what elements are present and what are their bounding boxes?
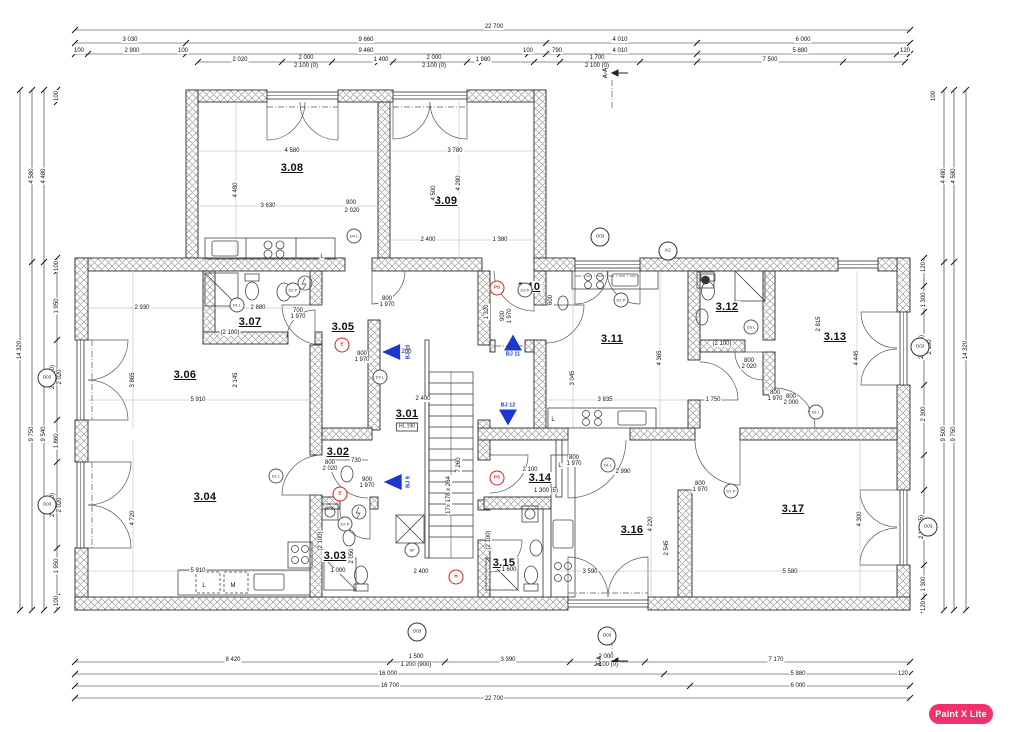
dimension-text: 1 970: [766, 396, 783, 402]
dimension-text: 2 930: [133, 305, 150, 311]
watermark-badge: Paint X Lite: [929, 704, 993, 724]
door-tag: D1 L: [230, 298, 245, 313]
dimension-text: 3 045: [570, 369, 576, 386]
dimension-text: 4 300: [857, 510, 863, 527]
window-tag: O03: [919, 518, 938, 537]
dimension-text: 22 700: [484, 24, 504, 30]
window-tag: O03: [591, 228, 610, 247]
dimension-text: 100: [177, 48, 189, 54]
dimension-text: 5 880: [789, 671, 806, 677]
dimension-text: 1 950: [54, 297, 60, 314]
room-label-3.06: 3.06: [172, 369, 199, 381]
dimension-text: 3 780: [446, 148, 463, 154]
dimension-text: (2 100): [318, 530, 324, 551]
door-tag: D1 P: [724, 484, 739, 499]
dimension-text: 4 480: [941, 167, 947, 184]
window-tag: O03: [38, 496, 57, 515]
room-label-3.17: 3.17: [780, 503, 807, 515]
room-label-3.13: 3.13: [822, 331, 849, 343]
dimension-text: 5 880: [791, 48, 808, 54]
door-tag: D2 P: [286, 283, 301, 298]
dimension-text: 3 835: [596, 397, 613, 403]
room-label-3.03: 3.03: [322, 550, 349, 562]
dimension-text: 2 545: [664, 539, 670, 556]
dimension-text: L: [557, 463, 562, 469]
dimension-text: 1 950: [54, 557, 60, 574]
direction-arrow-bj-10: BJ 10: [382, 344, 416, 360]
dimension-text: 4 445: [854, 349, 860, 366]
dimension-text: 900: [500, 310, 506, 322]
dimension-text: 3 630: [259, 203, 276, 209]
room-label-3.04: 3.04: [192, 491, 219, 503]
dimension-text: 2 020: [343, 208, 360, 214]
dimension-text: 1 970: [358, 483, 375, 489]
red-marker: H: [449, 570, 464, 585]
dimension-text: L: [201, 583, 206, 589]
dimension-text: 100: [522, 48, 534, 54]
dimension-text: 900: [345, 200, 357, 206]
direction-arrow-bj-12: BJ 12: [499, 403, 517, 426]
arrow-label: BJ 11: [506, 352, 520, 358]
dimension-text: 1 320: [484, 303, 490, 320]
dimension-text: 1 500: [407, 654, 424, 660]
arrow-label: BJ 12: [501, 403, 516, 409]
door-tag: D2 P: [338, 517, 353, 532]
room-label-3.07: 3.07: [237, 316, 264, 328]
room-label-3.11: 3.11: [599, 333, 625, 345]
dimension-text: 1 970: [565, 461, 582, 467]
door-tag: D1 L: [269, 469, 284, 484]
dimension-text: 2 145: [233, 371, 239, 388]
dimension-text: 2 000: [425, 55, 442, 61]
dimension-text: 1 750: [704, 397, 721, 403]
arrow-up-icon: [504, 335, 522, 351]
dimension-text: 1 700: [588, 55, 605, 61]
dimension-text: 7 260: [456, 456, 462, 473]
window-tag: O03: [911, 338, 930, 357]
dimension-text: 1 300: [921, 575, 927, 592]
dimension-text: 2 900: [123, 48, 140, 54]
room-label-3.16: 3.16: [619, 524, 646, 536]
door-tag: D2 L: [373, 370, 388, 385]
dimension-text: 2 020: [740, 364, 757, 370]
dimension-text: L: [319, 254, 324, 260]
room-label-3.05: 3.05: [330, 321, 357, 333]
dimension-text: 1 200 (900): [400, 662, 433, 668]
dimension-text: 100: [54, 260, 60, 272]
dimension-text: 9 750: [29, 425, 35, 442]
window-tag: O03: [38, 369, 57, 388]
dimension-text: 2 050: [349, 547, 355, 564]
dimension-text: 4 480: [41, 167, 47, 184]
dimension-text: 4 500: [431, 184, 437, 201]
dimension-text: 4 580: [29, 167, 35, 184]
dimension-text: 1 980: [474, 57, 491, 63]
dimension-text: 2 020: [231, 57, 248, 63]
door-tag: D3 L: [744, 320, 759, 335]
dimension-text: 600: [548, 294, 554, 306]
room-label-3.14: 3.14: [527, 472, 554, 484]
door-tag: D1 L: [601, 458, 616, 473]
dimension-text: 2 400: [414, 396, 431, 402]
door-tag: SP: [405, 543, 420, 558]
dimension-text: 4 365: [657, 349, 663, 366]
red-marker: PS: [490, 281, 505, 296]
section-label: A-A: [597, 656, 603, 667]
dimension-text: 2 000: [782, 400, 799, 406]
dimension-text: 7 170: [767, 657, 784, 663]
dimension-text: 14 320: [963, 340, 969, 360]
dimension-text: 1 380: [491, 237, 508, 243]
dimension-text: 4 720: [130, 509, 136, 526]
dimension-text: (2 100): [486, 529, 492, 550]
dimension-text: 1 000: [329, 568, 346, 574]
dimension-text: 1 400: [372, 57, 389, 63]
room-label-3.08: 3.08: [279, 162, 306, 174]
dimension-text: M: [230, 583, 237, 589]
dimension-text: 4 580: [951, 167, 957, 184]
dimension-text: 4 280: [456, 174, 462, 191]
dimension-text: 16 700: [380, 683, 400, 689]
dimension-text: 1 970: [378, 302, 395, 308]
dimension-text: 1 300: [921, 291, 927, 308]
door-tag: D1 P: [614, 293, 629, 308]
arrow-left-icon: [384, 474, 402, 490]
dimension-text: 8 420: [224, 657, 241, 663]
dimension-text: 2 815: [816, 315, 822, 332]
dimension-text: 9 660: [357, 37, 374, 43]
dimension-text: 790: [551, 48, 563, 54]
arrow-label: BJ 10: [406, 345, 412, 360]
dimension-text: 22 700: [484, 696, 504, 702]
dimension-text: 120: [921, 261, 927, 273]
dimension-text: 16 000: [378, 671, 398, 677]
dimension-text: 730: [350, 458, 362, 464]
dimension-text: 1 970: [507, 307, 513, 324]
dimension-text: 2 400: [412, 569, 429, 575]
dimension-text: 3 865: [130, 371, 136, 388]
dimension-text: 5 910: [189, 568, 206, 574]
dimension-text: 6 000: [794, 37, 811, 43]
dimension-text: 4 010: [611, 48, 628, 54]
dimension-text: 2 300: [921, 405, 927, 422]
dimension-text: 3 030: [121, 37, 138, 43]
dimension-text: 5 580: [781, 569, 798, 575]
dimension-text: 6 000: [789, 683, 806, 689]
section-label: A-A: [603, 68, 609, 79]
dimension-text: 1 970: [691, 487, 708, 493]
arrow-left-icon: [382, 344, 400, 360]
dimension-text: 9 750: [951, 425, 957, 442]
annotation-overlay: 3.013.023.033.043.053.063.073.083.093.10…: [0, 0, 1024, 732]
red-marker: E: [333, 487, 348, 502]
red-marker: PS: [490, 471, 505, 486]
dimension-text: 1 300 (5): [533, 488, 559, 494]
dimension-text: 9 500: [941, 425, 947, 442]
dimension-text: 120: [921, 600, 927, 612]
dimension-text: 2 880: [249, 305, 266, 311]
direction-arrow-bj-9: BJ 9: [384, 474, 415, 490]
floor-plan-page: 3.013.023.033.043.053.063.073.083.093.10…: [0, 0, 1024, 732]
window-tag: O03: [408, 623, 427, 642]
arrow-label: BJ 9: [406, 476, 412, 488]
dimension-text: 2 020: [57, 368, 63, 385]
dimension-text: 2 400: [419, 237, 436, 243]
dimension-text: (2 100): [219, 330, 240, 336]
dimension-text: 1 970: [289, 314, 306, 320]
dimension-text: 9 460: [357, 48, 374, 54]
dimension-text: 7 500: [761, 57, 778, 63]
dimension-text: 100: [54, 90, 60, 102]
dimension-text: 5 910: [189, 397, 206, 403]
room-label-3.02: 3.02: [325, 446, 352, 458]
dimension-text: 100: [54, 595, 60, 607]
dimension-text: 2 990: [614, 469, 631, 475]
room-label-3.12: 3.12: [714, 301, 741, 313]
dimension-text: 120: [897, 671, 909, 677]
dimension-text: 1 970: [353, 357, 370, 363]
dimension-text: 120: [899, 48, 911, 54]
direction-arrow-bj-11: BJ 11: [504, 335, 522, 358]
dimension-text: (2 100): [711, 341, 732, 347]
stair-note: HL 190: [396, 423, 418, 432]
dimension-text: 1 600: [500, 567, 517, 573]
dimension-text: 2 000: [297, 55, 314, 61]
dimension-text: 1 860: [54, 432, 60, 449]
door-tag: D4 L: [347, 229, 362, 244]
window-tag: K2: [659, 242, 678, 261]
dimension-text: 14 320: [17, 340, 23, 360]
door-tag: D3 P: [518, 283, 533, 298]
dimension-text: 2 020: [57, 496, 63, 513]
dimension-text: 2 100: [521, 467, 538, 473]
arrow-down-icon: [499, 410, 517, 426]
dimension-text: 9 540: [41, 425, 47, 442]
dimension-text: 3 590: [581, 569, 598, 575]
dimension-text: 100: [73, 48, 85, 54]
dimension-text: L: [550, 417, 555, 423]
room-label-3.01: 3.01: [394, 408, 421, 420]
dimension-text: 4 480: [233, 181, 239, 198]
dimension-text: 100: [931, 90, 937, 102]
dimension-text: 17x 178 x 264: [446, 475, 452, 515]
red-marker: E: [335, 338, 350, 353]
dimension-text: 3 390: [499, 657, 516, 663]
dimension-text: 2 020: [321, 466, 338, 472]
window-tag: O03: [598, 627, 617, 646]
dimension-text: 4 010: [611, 37, 628, 43]
door-tag: D1 L: [809, 405, 824, 420]
dimension-text: 2 100 (0): [293, 63, 319, 69]
dimension-text: 4 220: [648, 515, 654, 532]
dimension-text: 2 100 (0): [421, 63, 447, 69]
dimension-text: 4 580: [283, 148, 300, 154]
